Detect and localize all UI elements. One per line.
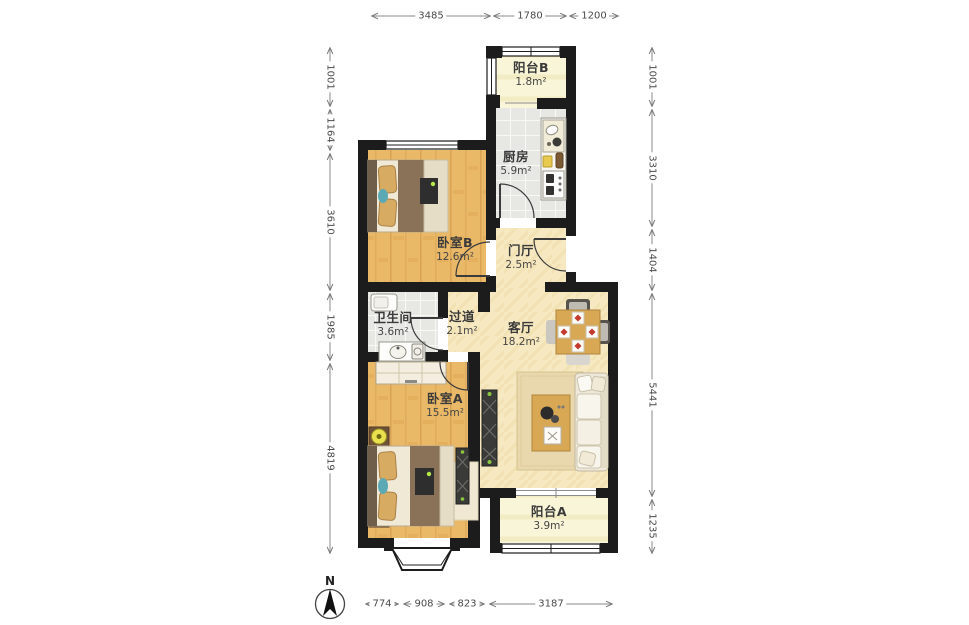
dim-left-1: 1164 (325, 114, 336, 145)
dim-right-3: 5441 (647, 379, 658, 410)
dim-left-4: 4819 (325, 442, 336, 473)
kitchen-counter (541, 118, 566, 200)
floor-plan-graphic (0, 0, 969, 625)
north-arrow-icon (316, 589, 345, 619)
window-bedroom-b (386, 141, 458, 149)
dim-left-3: 1985 (325, 311, 336, 342)
window-balcony-a (502, 544, 600, 553)
north-label: N (325, 574, 335, 588)
dim-top-1: 1780 (514, 11, 545, 22)
dim-bottom-2: 823 (454, 599, 479, 610)
dim-right-1: 3310 (647, 152, 658, 183)
dim-right-0: 1001 (647, 61, 658, 92)
dim-top-0: 3485 (415, 11, 446, 22)
dim-bottom-3: 3187 (535, 599, 566, 610)
dim-left-0: 1001 (325, 61, 336, 92)
dim-right-4: 1235 (647, 510, 658, 541)
bay-window (392, 548, 452, 570)
floor-plan-page: 阳台B 1.8m² 厨房 5.9m² 卧室B 12.6m² 门厅 2.5m² 卫… (0, 0, 969, 625)
tv-cabinet-living (482, 390, 497, 466)
dim-left-2: 3610 (325, 206, 336, 237)
dim-bottom-1: 908 (411, 599, 436, 610)
bed-bedroom-b (368, 160, 448, 232)
tv-panel-bedroom-a (456, 448, 469, 504)
window-balcony-b-top (502, 47, 560, 56)
dim-top-2: 1200 (578, 11, 609, 22)
window-balcony-b-side (487, 58, 496, 95)
dim-bottom-0: 774 (369, 599, 394, 610)
dim-right-2: 1404 (647, 244, 658, 275)
living-room-rug-and-sofa (517, 372, 608, 471)
